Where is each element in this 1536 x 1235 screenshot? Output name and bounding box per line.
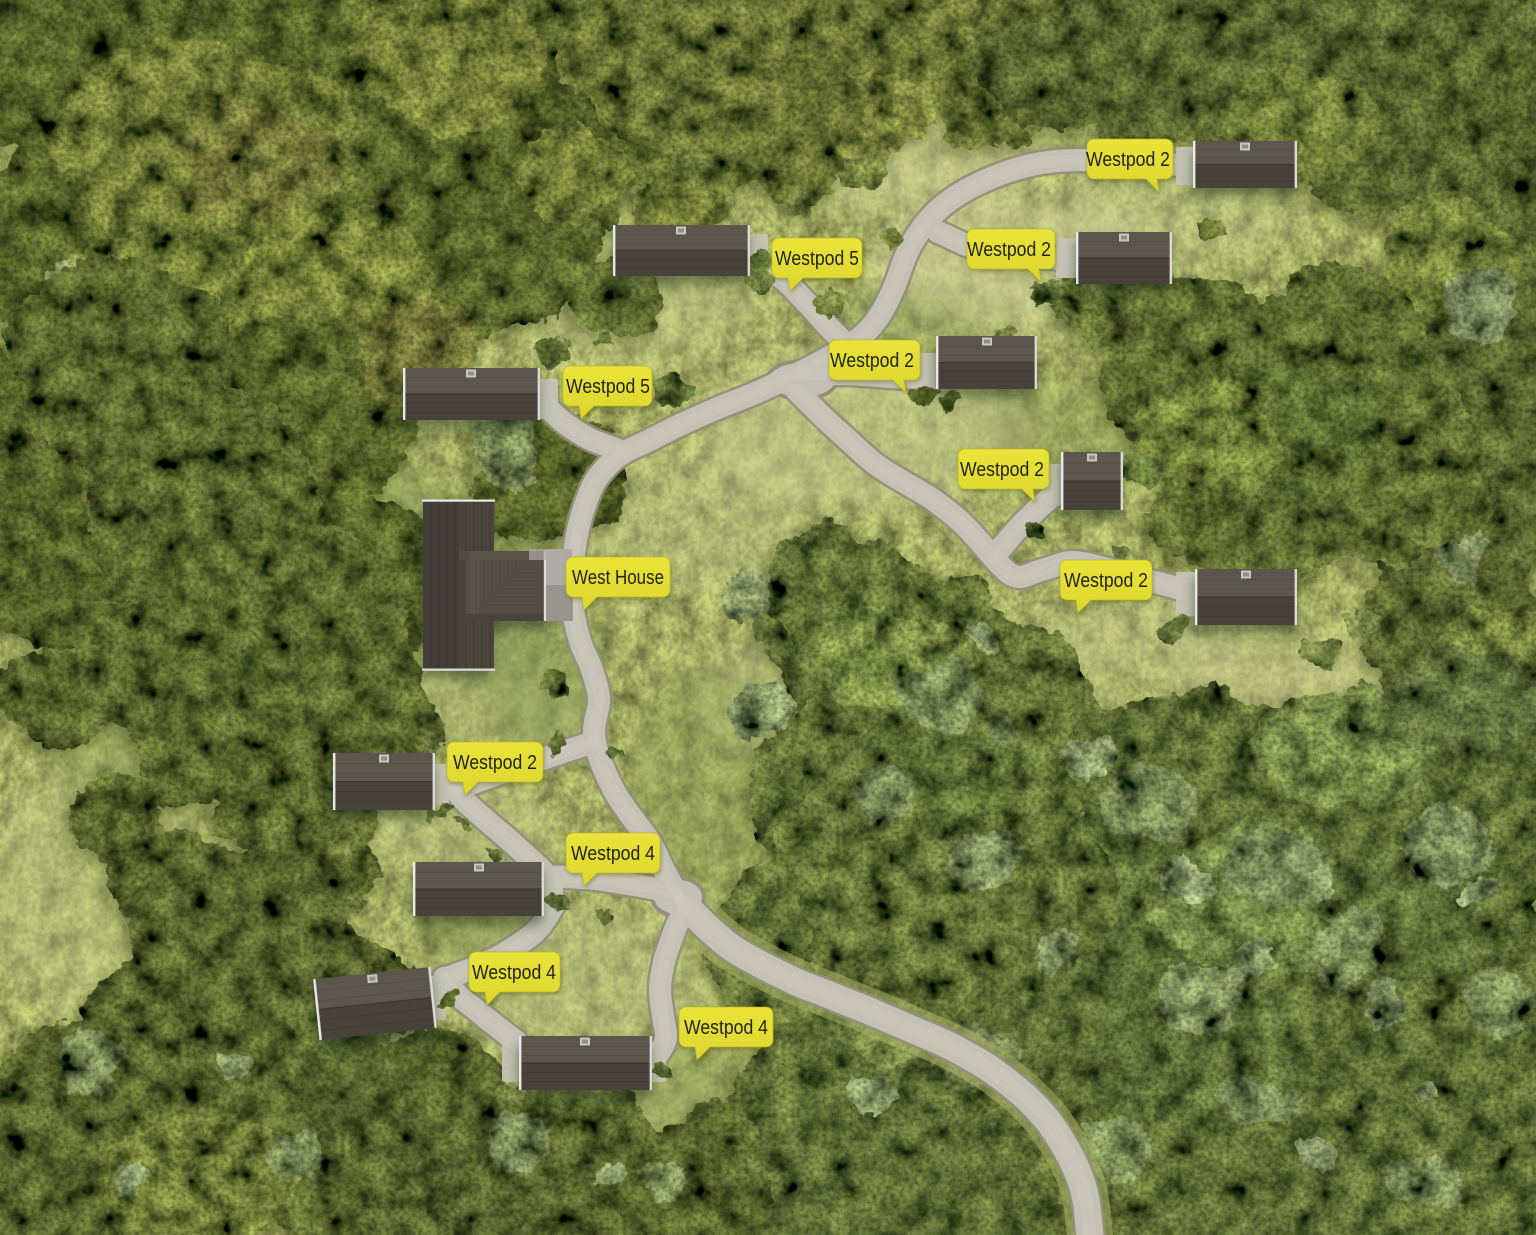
svg-text:Westpod 2: Westpod 2 [1086, 149, 1170, 171]
svg-text:Westpod 4: Westpod 4 [571, 843, 655, 865]
svg-text:West House: West House [572, 567, 664, 589]
svg-text:Westpod 4: Westpod 4 [684, 1017, 768, 1039]
svg-text:Westpod 4: Westpod 4 [472, 962, 556, 984]
svg-text:Westpod 2: Westpod 2 [960, 459, 1044, 481]
svg-text:Westpod 5: Westpod 5 [566, 376, 650, 398]
svg-text:Westpod 2: Westpod 2 [453, 752, 537, 774]
svg-text:Westpod 5: Westpod 5 [775, 248, 859, 270]
svg-text:Westpod 2: Westpod 2 [967, 239, 1051, 261]
svg-text:Westpod 2: Westpod 2 [830, 350, 914, 372]
svg-text:Westpod 2: Westpod 2 [1064, 570, 1148, 592]
